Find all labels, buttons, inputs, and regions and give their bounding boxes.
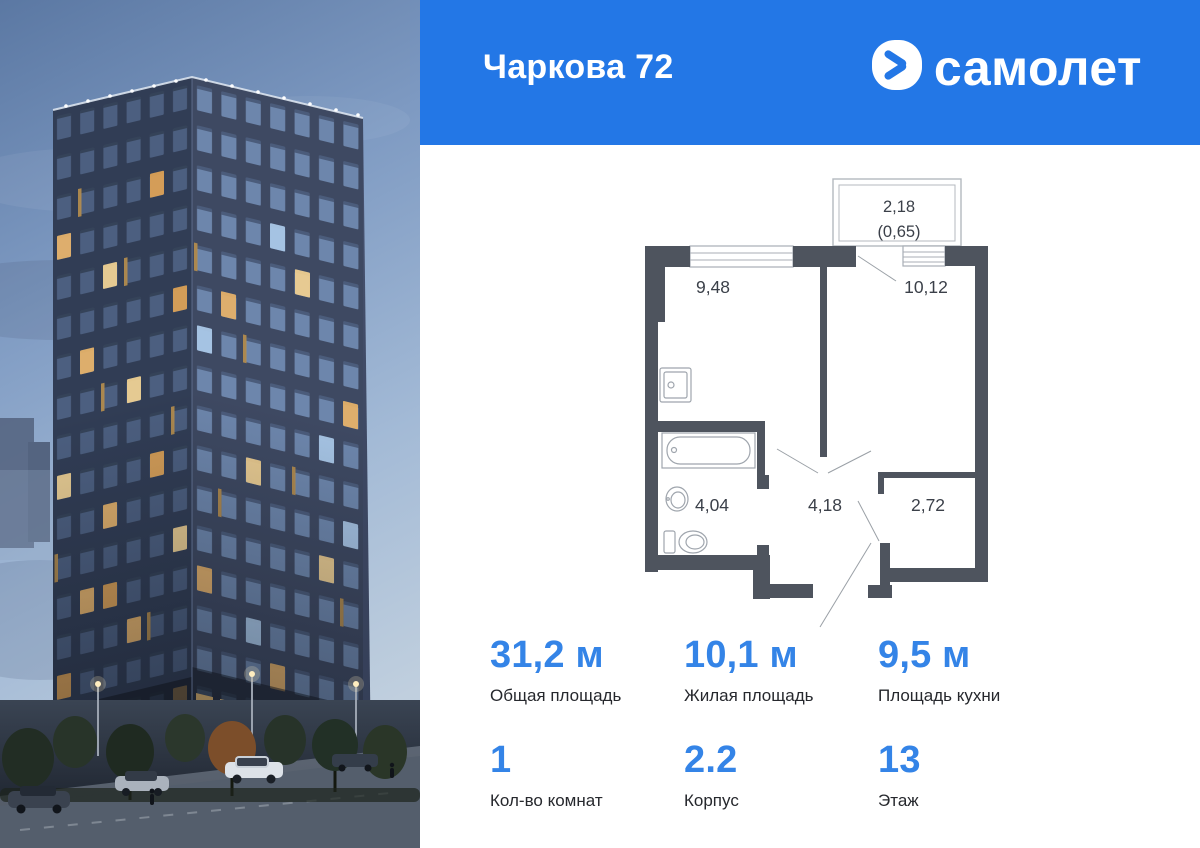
room-area-hallway: 4,18	[808, 495, 842, 515]
washbasin-icon	[666, 487, 688, 511]
header: Чаркова 72 самолет	[420, 0, 1200, 145]
listing-card: Чаркова 72 самолет	[0, 0, 1200, 848]
stat-living-area: 10,1 м Жилая площадь	[684, 636, 878, 706]
stat-value: 13	[878, 741, 1050, 779]
stats-row-details: 1 Кол-во комнат 2.2 Корпус 13 Этаж	[490, 741, 1050, 811]
stats-row-areas: 31,2 м Общая площадь 10,1 м Жилая площад…	[490, 636, 1050, 706]
brand-wordmark: самолет	[934, 43, 1142, 93]
room-area-living: 10,12	[904, 277, 948, 297]
bathtub-icon	[662, 433, 755, 468]
stat-building-number: 2.2 Корпус	[684, 741, 878, 811]
stat-floor-number: 13 Этаж	[878, 741, 1050, 811]
toilet-icon	[664, 531, 707, 553]
stat-value: 31,2 м	[490, 636, 684, 674]
kitchen-sink-icon	[660, 368, 691, 402]
door-leader-lines	[777, 256, 896, 627]
samolet-logo-icon	[872, 40, 922, 95]
stat-value: 1	[490, 741, 684, 779]
stat-label: Корпус	[684, 791, 878, 811]
balcony-coefficient-label: (0,65)	[877, 223, 920, 241]
building-photo-render	[0, 0, 420, 848]
building-photo	[0, 0, 420, 848]
room-area-wardrobe: 2,72	[911, 495, 945, 515]
balcony-area-label: 2,18	[883, 198, 915, 216]
stat-value: 2.2	[684, 741, 878, 779]
stat-label: Кол-во комнат	[490, 791, 684, 811]
brand-logo: самолет	[872, 40, 1142, 95]
room-area-bathroom: 4,04	[695, 495, 729, 515]
stat-label: Общая площадь	[490, 686, 684, 706]
stat-total-area: 31,2 м Общая площадь	[490, 636, 684, 706]
stat-value: 10,1 м	[684, 636, 878, 674]
stat-label: Этаж	[878, 791, 1050, 811]
stat-rooms-count: 1 Кол-во комнат	[490, 741, 684, 811]
stat-label: Жилая площадь	[684, 686, 878, 706]
stat-kitchen-area: 9,5 м Площадь кухни	[878, 636, 1050, 706]
room-area-kitchen: 9,48	[696, 277, 730, 297]
project-title: Чаркова 72	[483, 48, 674, 87]
fixtures	[660, 368, 755, 553]
floor-plan: 2,18 (0,65) 9,48 10,12 4,04 4,18 2,72	[618, 168, 1014, 646]
stat-value: 9,5 м	[878, 636, 1050, 674]
stat-label: Площадь кухни	[878, 686, 1050, 706]
